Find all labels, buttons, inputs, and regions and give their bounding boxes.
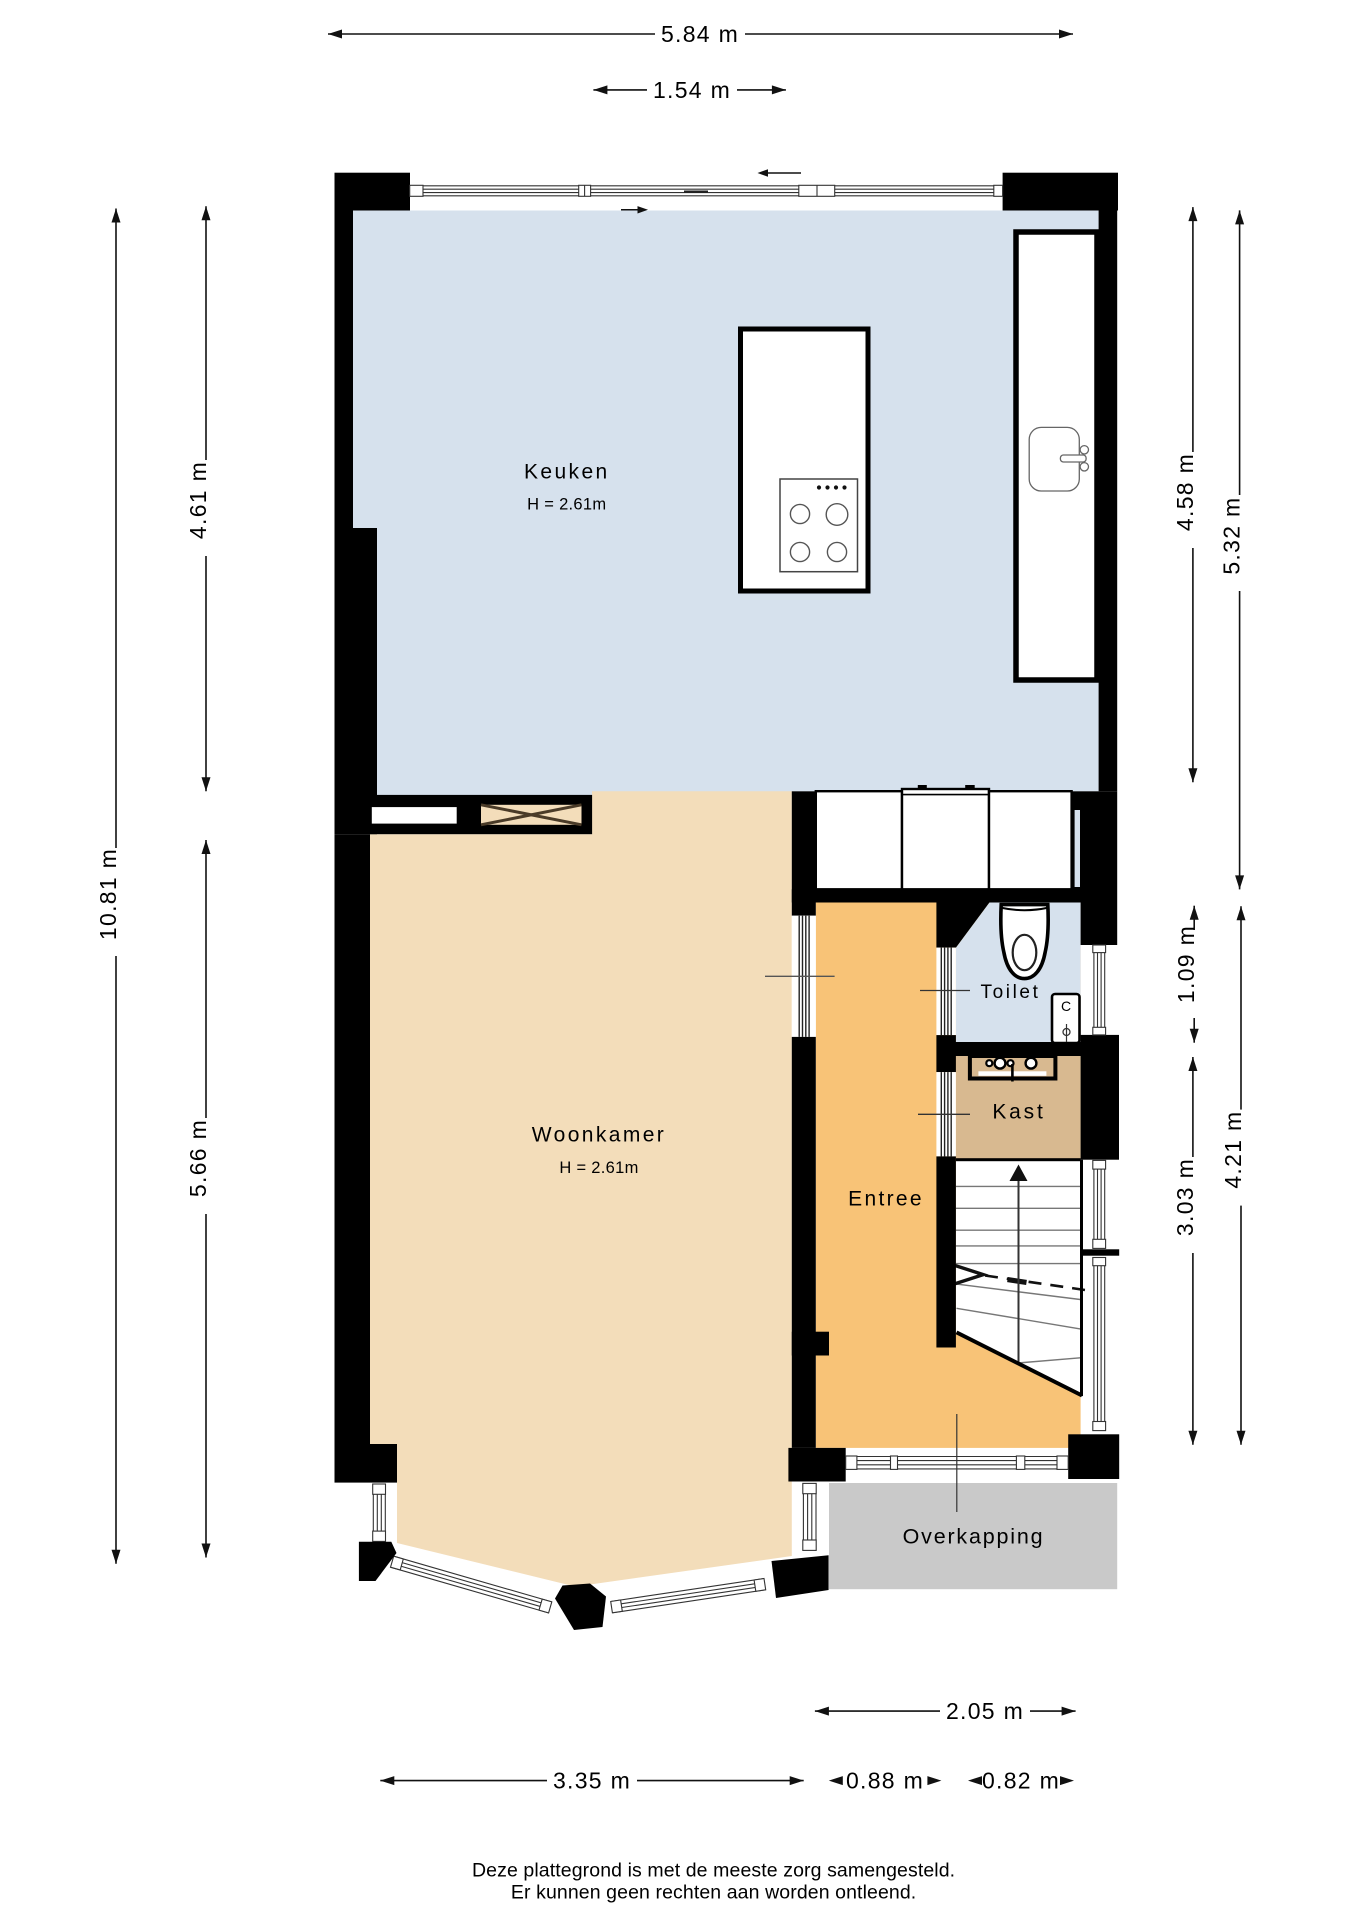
svg-text:3.35 m: 3.35 m: [553, 1768, 631, 1794]
svg-text:5.32 m: 5.32 m: [1219, 497, 1245, 575]
svg-text:4.61 m: 4.61 m: [185, 461, 211, 539]
svg-text:Kast: Kast: [992, 1100, 1045, 1123]
svg-text:4.21 m: 4.21 m: [1220, 1111, 1246, 1189]
svg-text:3.03 m: 3.03 m: [1172, 1158, 1198, 1236]
svg-text:Woonkamer: Woonkamer: [532, 1123, 666, 1146]
svg-text:2.05 m: 2.05 m: [946, 1698, 1024, 1724]
svg-text:Keuken: Keuken: [524, 460, 610, 483]
svg-text:5.84 m: 5.84 m: [661, 21, 739, 47]
svg-text:4.58 m: 4.58 m: [1172, 453, 1198, 531]
svg-text:Entree: Entree: [848, 1187, 924, 1210]
svg-text:Overkapping: Overkapping: [903, 1525, 1045, 1549]
svg-text:Deze plattegrond is met de mee: Deze plattegrond is met de meeste zorg s…: [472, 1859, 955, 1881]
svg-text:H = 2.61m: H = 2.61m: [527, 495, 606, 513]
svg-text:Toilet: Toilet: [981, 982, 1041, 1003]
svg-text:Er kunnen geen rechten aan wor: Er kunnen geen rechten aan worden ontlee…: [511, 1882, 916, 1904]
svg-text:0.82 m: 0.82 m: [982, 1768, 1060, 1794]
svg-text:H = 2.61m: H = 2.61m: [559, 1159, 638, 1177]
svg-text:1.09 m: 1.09 m: [1173, 925, 1199, 1003]
svg-text:5.66 m: 5.66 m: [185, 1119, 211, 1197]
svg-text:0.88 m: 0.88 m: [846, 1768, 924, 1794]
svg-text:C: C: [1061, 998, 1071, 1014]
svg-text:10.81 m: 10.81 m: [95, 848, 121, 940]
svg-text:1.54 m: 1.54 m: [653, 77, 731, 103]
